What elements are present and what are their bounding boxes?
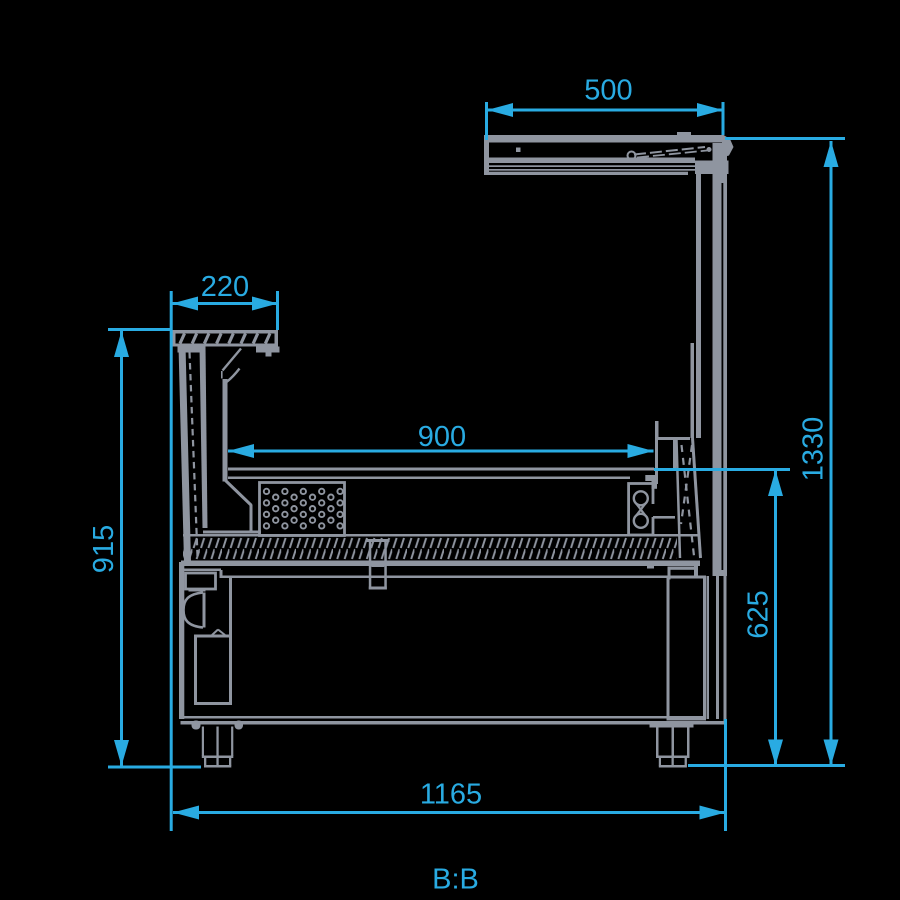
svg-text:900: 900 (418, 421, 466, 453)
svg-text:220: 220 (201, 271, 249, 303)
svg-text:1165: 1165 (420, 779, 482, 811)
svg-text:500: 500 (584, 75, 632, 107)
svg-text:B:B: B:B (432, 864, 479, 896)
svg-text:915: 915 (88, 525, 120, 573)
svg-text:1330: 1330 (798, 417, 830, 482)
svg-text:625: 625 (743, 590, 775, 638)
